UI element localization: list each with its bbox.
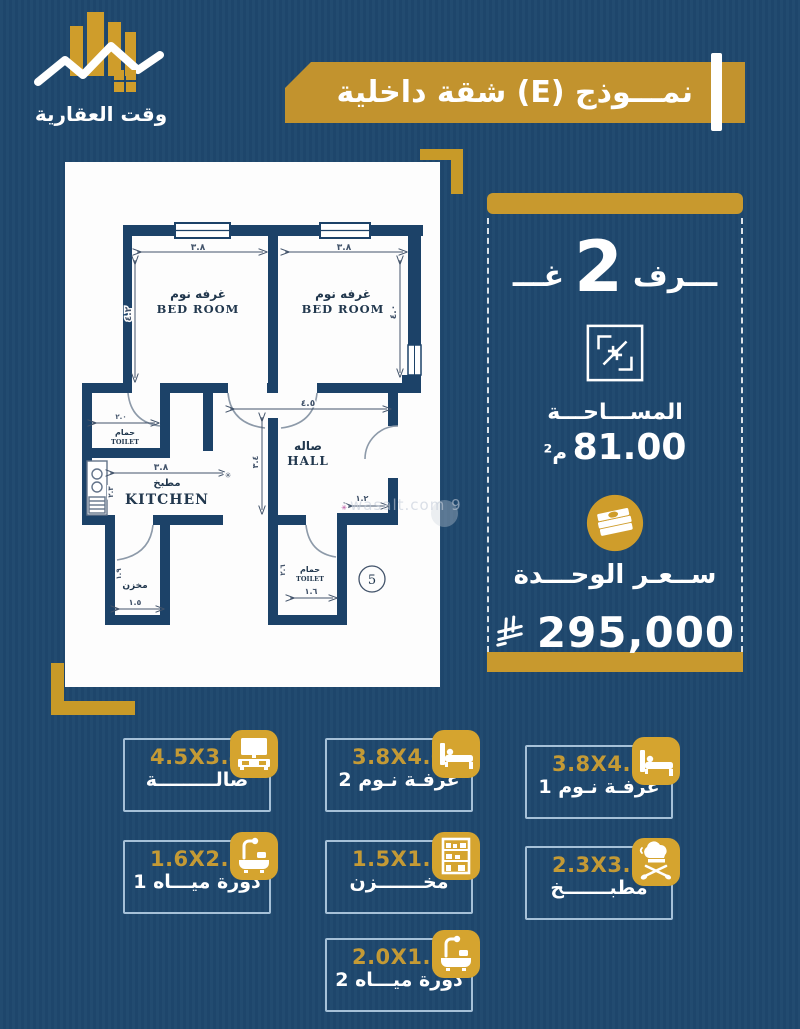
card-storage: 1.5X1.9 مخـــــــزن	[325, 840, 473, 914]
saudi-riyal-symbol-icon	[495, 614, 525, 650]
svg-text:٣.٨: ٣.٨	[191, 243, 206, 253]
bathtub-icon	[230, 832, 278, 880]
rooms-suffix: ـــرف	[633, 262, 717, 298]
banner-accent-bar	[711, 53, 722, 131]
card-bathroom-1: 1.6X2.6 دورة ميـــاه 1	[123, 840, 271, 914]
money-icon	[586, 494, 644, 556]
svg-text:5: 5	[368, 573, 376, 588]
title-banner: نمـــوذج (E) شقة داخلية	[285, 62, 745, 123]
company-name: وقت العقارية	[28, 102, 174, 126]
bedroom-left-label-en: BED ROOM	[157, 302, 240, 316]
rooms-count: 2	[574, 238, 623, 298]
bed-icon	[432, 730, 480, 778]
floor-plan-drawing: ٣.٨ ٣.٨ ٤.٢ ٤.٠ ٤.٥ ٣.٤ ٣.٨ ٢.٣ ٢.٠ ١.٥ …	[65, 162, 440, 687]
floor-plan: ٣.٨ ٣.٨ ٤.٢ ٤.٠ ٤.٥ ٣.٤ ٣.٨ ٢.٣ ٢.٠ ١.٥ …	[65, 162, 440, 687]
storage-label-ar: مخزن	[122, 581, 147, 591]
svg-text:٤.٢: ٤.٢	[124, 306, 134, 321]
svg-text:١.٩: ١.٩	[115, 568, 123, 580]
area-unit: م²	[544, 440, 567, 464]
rooms-count-row: غـــ 2 ـــرف	[513, 238, 717, 298]
reference-star: ✳	[225, 471, 232, 480]
kitchen-label-en: KITCHEN	[125, 492, 209, 508]
chef-hat-icon	[632, 838, 680, 886]
area-label: المســـاحـــة	[547, 400, 683, 425]
price-value: 295,000	[537, 608, 735, 657]
panel-body: غـــ 2 ـــرف المســـاحـــة 81.00 م²	[487, 218, 743, 652]
svg-text:٢.٠: ٢.٠	[115, 413, 126, 421]
svg-text:٣.٨: ٣.٨	[337, 243, 352, 253]
rooms-prefix: غـــ	[513, 262, 564, 298]
area-value: 81.00 م²	[544, 427, 687, 468]
kitchen-label-ar: مطبخ	[153, 478, 180, 489]
company-logo-icon	[30, 8, 170, 104]
hall-label-en: HALL	[287, 454, 329, 468]
unit-number-badge: 5	[359, 566, 385, 592]
sofa-tv-icon	[230, 730, 278, 778]
svg-text:٤.٥: ٤.٥	[301, 399, 315, 409]
price-label: ســعـر الوحـــدة	[514, 560, 717, 590]
toilet2-label-en: TOILET	[296, 575, 324, 583]
toilet2-label-ar: حمام	[300, 565, 320, 574]
area-number: 81.00	[573, 427, 687, 468]
card-hall: 4.5X3.4 صالـــــــــة	[123, 738, 271, 812]
svg-text:٤.٠: ٤.٠	[389, 305, 399, 319]
bed-icon	[632, 737, 680, 785]
bedroom-right-label-en: BED ROOM	[302, 302, 385, 316]
area-expand-icon	[584, 322, 646, 388]
info-panel: غـــ 2 ـــرف المســـاحـــة 81.00 م²	[487, 193, 743, 672]
svg-text:١.٦: ١.٦	[305, 587, 318, 596]
door-arcs	[117, 393, 398, 560]
watermark: wasalt.com 9	[350, 496, 462, 514]
bedroom-left-label-ar: غرفه نوم	[170, 287, 226, 302]
svg-text:٢.٣: ٢.٣	[107, 486, 115, 498]
svg-text:٢.٦: ٢.٦	[279, 564, 287, 576]
bathtub-icon	[432, 930, 480, 978]
card-bedroom-2: 3.8X4.0 غرفـة نـوم 2	[325, 738, 473, 812]
card-bedroom-1: 3.8X4.2 غرفـة نـوم 1	[525, 745, 673, 819]
svg-text:١.٥: ١.٥	[129, 598, 142, 607]
storage-shelf-icon	[432, 832, 480, 880]
svg-text:٣.٤: ٣.٤	[251, 455, 260, 468]
card-kitchen: 2.3X3.8 مطبـــــــخ	[525, 846, 673, 920]
panel-top-bar	[487, 193, 743, 214]
bedroom-right-label-ar: غرفه نوم	[315, 287, 371, 302]
kitchen-counter	[87, 461, 107, 515]
entry-marker-star: ✳	[341, 504, 347, 512]
page-title: نمـــوذج (E) شقة داخلية	[317, 75, 746, 110]
price-row: 295,000	[495, 608, 735, 657]
toilet1-label-ar: حمام	[115, 428, 135, 437]
hall-label-ar: صاله	[294, 439, 322, 453]
svg-text:٣.٨: ٣.٨	[154, 463, 169, 473]
toilet1-label-en: TOILET	[111, 438, 139, 446]
card-bathroom-2: 2.0X1.5 دورة ميـــاه 2	[325, 938, 473, 1012]
